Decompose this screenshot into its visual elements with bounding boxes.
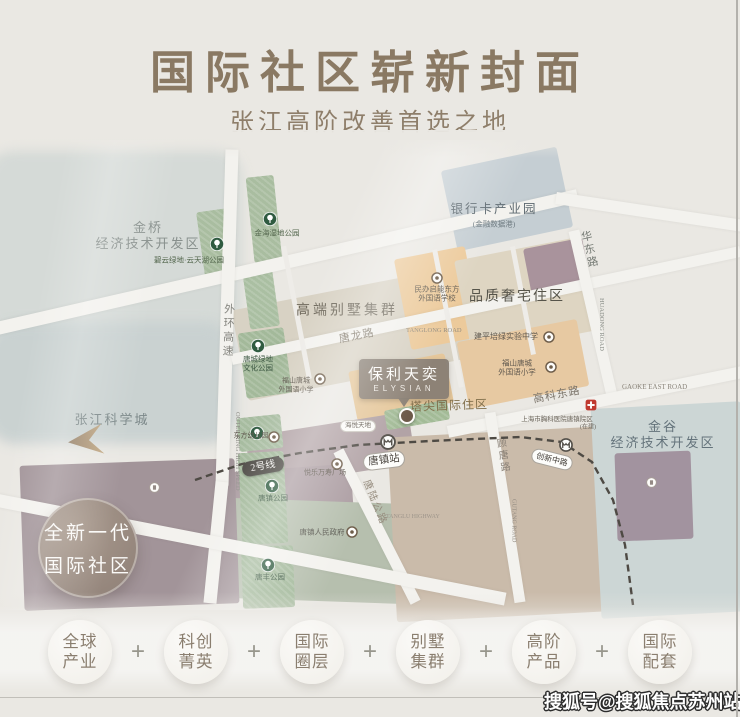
project-name-en: ELYSIAN [359,384,449,393]
frame-edge [736,0,738,717]
metro-logo-icon [380,434,396,450]
plus-separator: + [357,638,383,666]
feature-circle: 别墅集群 [396,620,460,684]
project-name: 保利天奕 [359,363,449,384]
community-badge: 全新一代 国际社区 [38,498,138,598]
feature-circle: 国际配套 [628,620,692,684]
feature-circle: 全球产业 [48,620,112,684]
plus-separator: + [473,638,499,666]
promo-poster: 国际社区崭新封面 张江高阶改善首选之地 金桥经济技术开发区碧云绿地·云天湖公园金… [0,0,740,717]
watermark: 搜狐号@搜狐焦点苏州站 [544,688,740,714]
badge-line2: 国际社区 [44,551,132,578]
plus-separator: + [125,638,151,666]
feature-circle: 科创菁英 [164,620,228,684]
callout-pointer [398,398,410,407]
plus-separator: + [241,638,267,666]
project-callout: 保利天奕 ELYSIAN [359,359,449,399]
badge-line1: 全新一代 [44,518,132,545]
feature-row: 全球产业+ 科创菁英+ 国际圈层+ 别墅集群+ 高阶产品+ 国际配套 [0,620,740,684]
plus-separator: + [589,638,615,666]
feature-circle: 国际圈层 [280,620,344,684]
feature-circle: 高阶产品 [512,620,576,684]
metro-logo-icon [559,438,573,452]
project-location-pin [399,408,415,424]
direction-arrow-icon [56,422,105,461]
